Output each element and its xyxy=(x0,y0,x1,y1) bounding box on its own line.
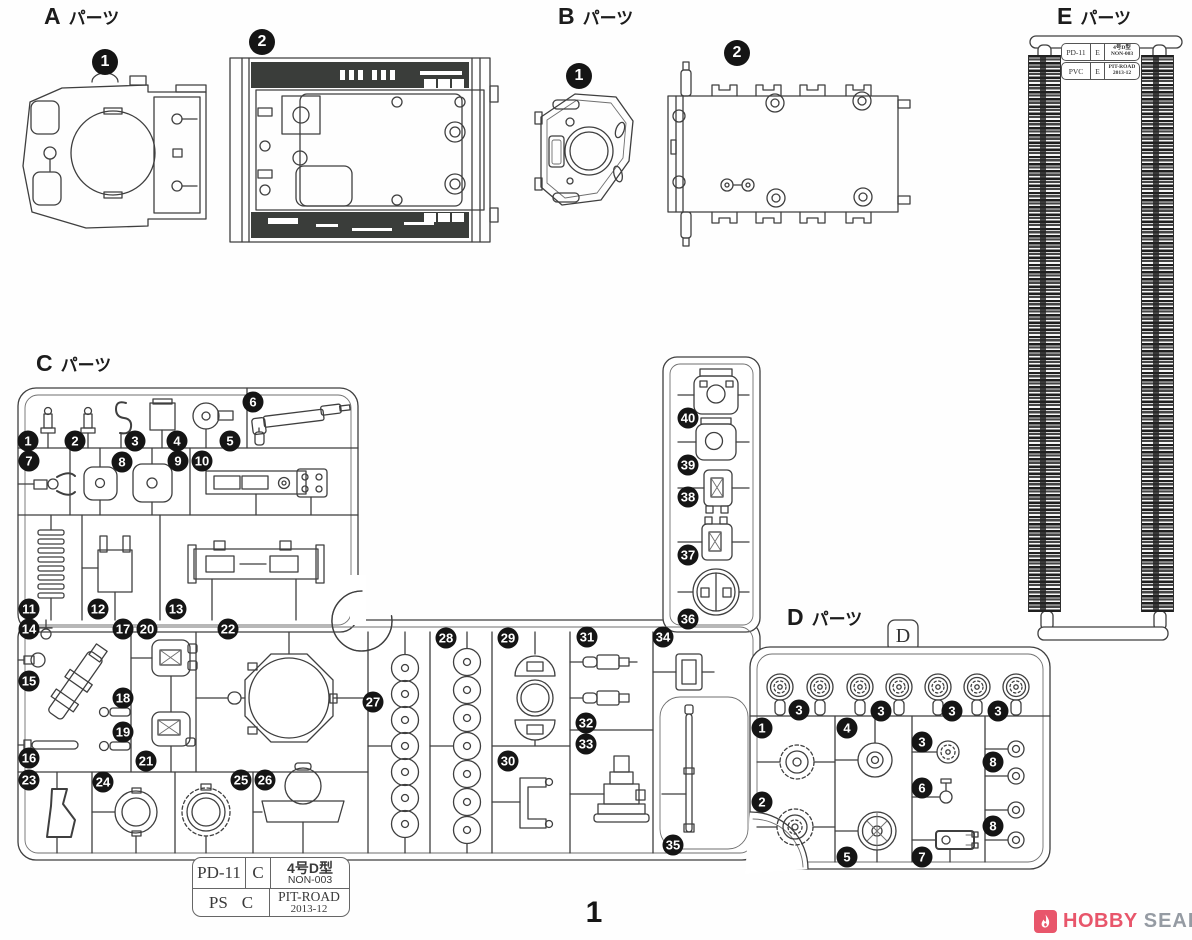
section-title-b: B パーツ xyxy=(558,3,633,30)
c-tag-row-1: PD-11 C 4号D型 NON-003 xyxy=(193,858,349,889)
ring-patch xyxy=(350,575,366,625)
tag-kit-name: 4号D型 NON-003 xyxy=(1105,44,1139,60)
d-sprue-tab-letter: D xyxy=(889,621,917,651)
tag-maker: PIT-ROAD 2013-12 xyxy=(1105,63,1139,79)
tag-sprue-letter: C xyxy=(245,858,271,888)
section-word: パーツ xyxy=(583,4,634,29)
section-title-d: D パーツ xyxy=(787,604,862,631)
b-part-1-turret-drawing xyxy=(535,94,633,205)
e-track-left xyxy=(1028,55,1061,612)
brand-word-hobby: HOBBY xyxy=(1063,910,1138,933)
tag-maker: PIT-ROAD 2013-12 xyxy=(269,889,348,916)
e-track-right xyxy=(1141,55,1174,612)
tag-kit-code: PD-11 xyxy=(1062,44,1090,60)
section-word: パーツ xyxy=(69,4,120,29)
a-part-1-turret-drawing xyxy=(23,73,206,228)
a-part-2-hull-drawing xyxy=(230,58,498,242)
c-tag-row-2: PS C PIT-ROAD 2013-12 xyxy=(193,889,349,916)
line-art xyxy=(0,0,1192,940)
b-part-2-hull-tub-drawing xyxy=(668,62,910,246)
page-number: 1 xyxy=(577,896,611,930)
tag-kit-code: PD-11 xyxy=(193,858,245,888)
instruction-sheet-page: A パーツ B パーツ E パーツ C パーツ D パーツ D 12 12 12… xyxy=(0,0,1192,940)
section-title-e: E パーツ xyxy=(1057,3,1131,30)
section-title-c: C パーツ xyxy=(36,350,111,377)
d-sprue-frame xyxy=(745,620,1050,874)
section-word: パーツ xyxy=(812,605,863,630)
section-letter: E xyxy=(1057,3,1073,30)
hobbysearch-watermark: HOBBY SEARCH xyxy=(1034,910,1192,933)
flame-icon xyxy=(1034,910,1057,933)
e-tag-row-2: PVC E PIT-ROAD 2013-12 xyxy=(1061,62,1140,80)
e-sprue-tag: PD-11 E 4号D型 NON-003 PVC E PIT-ROAD 2013… xyxy=(1061,43,1140,81)
tag-material: PS C xyxy=(193,889,269,916)
section-word: パーツ xyxy=(1080,4,1131,29)
brand-word-search: SEARCH xyxy=(1144,910,1192,933)
tag-sprue-letter: E xyxy=(1090,44,1105,60)
section-letter: B xyxy=(558,3,576,30)
section-letter: D xyxy=(787,604,805,631)
section-letter: C xyxy=(36,350,54,377)
section-word: パーツ xyxy=(61,351,112,376)
tag-kit-name: 4号D型 NON-003 xyxy=(271,858,349,888)
tag-material: PVC xyxy=(1062,63,1090,79)
section-letter: A xyxy=(44,3,62,30)
c-sprue-tag: PD-11 C 4号D型 NON-003 PS C PIT-ROAD 2013-… xyxy=(192,857,350,917)
e-tag-row-1: PD-11 E 4号D型 NON-003 xyxy=(1061,43,1140,61)
tag-sprue-letter: E xyxy=(1090,63,1105,79)
section-title-a: A パーツ xyxy=(44,3,119,30)
